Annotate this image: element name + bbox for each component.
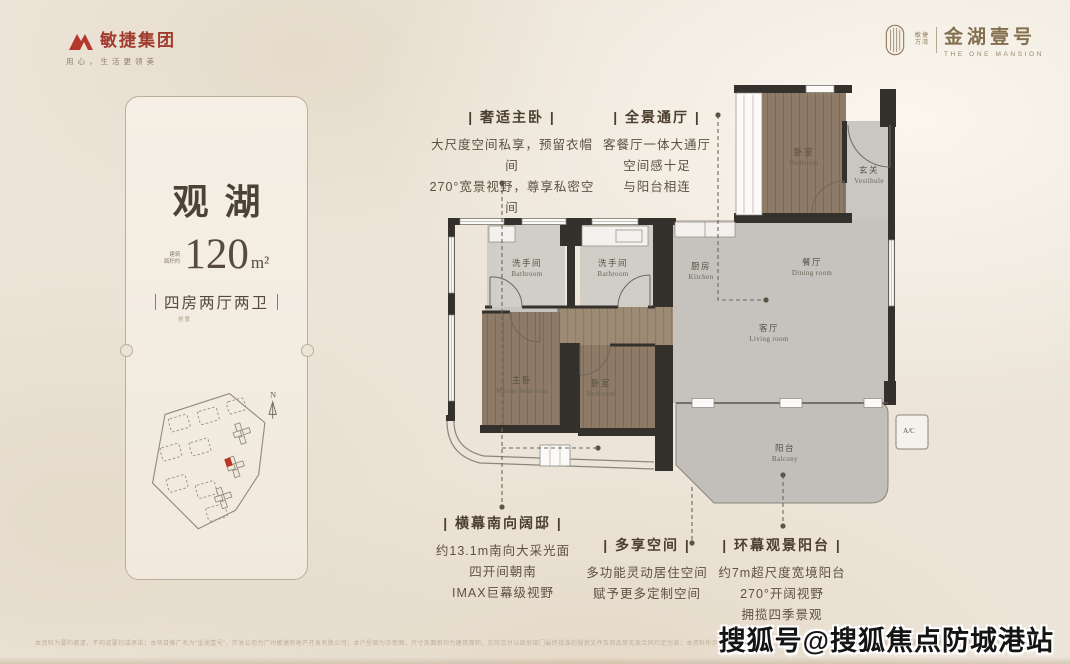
unit-layout: 四房两厅两卫 — [126, 291, 307, 313]
callout-line: 270°开阔视野 — [696, 584, 868, 605]
poster-page: 敏捷集团 用心，生活更领美 敏捷 万湾 金湖壹号 THE ONE MANSION… — [0, 0, 1070, 664]
room-cn: 玄关 — [854, 164, 884, 176]
area-label-line2: 面积约 — [164, 259, 181, 266]
room-en: Balcony — [772, 455, 798, 463]
site-boundary — [153, 394, 265, 529]
room-label-bedroom2: 卧室 Bedroom — [587, 377, 616, 398]
area-unit: m² — [251, 253, 269, 273]
room-label-bathroom1: 洗手间 Bathroom — [511, 257, 542, 278]
callout-title: | 横幕南向阔邸 | — [417, 513, 589, 533]
compass-n-label: N — [270, 391, 276, 400]
unit-info-card: 观湖 建筑 面积约 120 m² 四房两厅两卫 创意 — [125, 96, 308, 580]
lantern-emblem-icon — [882, 22, 908, 58]
room-label-vestibule: 玄关 Vestibule — [854, 164, 884, 185]
callout-line: 约7m超尺度宽境阳台 — [696, 563, 868, 584]
ac-text: A/C — [903, 427, 915, 435]
layout-text: 四房两厅两卫 — [164, 291, 269, 313]
card-notch-left — [120, 344, 133, 357]
room-label-dining: 餐厅 Dining room — [792, 256, 832, 277]
room-label-bedroom-top: 卧室 Bedroom — [790, 146, 819, 167]
callout-line: 客餐厅一体大通厅 — [577, 135, 737, 156]
brand-left-name: 敏捷集团 — [100, 26, 176, 51]
room-en: Bathroom — [511, 270, 542, 278]
watermark: 搜狐号@搜狐焦点防城港站 — [719, 619, 1054, 658]
site-pinwheel-buildings — [212, 421, 253, 510]
room-label-balcony: 阳台 Balcony — [772, 442, 798, 463]
room-label-ac: A/C — [903, 427, 915, 435]
unit-title-text: 观湖 — [172, 182, 276, 222]
room-label-kitchen: 厨房 Kitchen — [689, 260, 714, 281]
area-value: 120 — [184, 235, 249, 275]
brand-swoosh-icon — [66, 32, 96, 51]
room-cn: 客厅 — [749, 322, 789, 334]
room-cn: 卧室 — [790, 146, 819, 158]
compass-icon: N — [269, 391, 276, 419]
card-notch-right — [301, 344, 314, 357]
callout-line: 与阳台相连 — [577, 177, 737, 198]
room-en: Dining room — [792, 269, 832, 277]
callout-panoramic-hall: | 全景通厅 | 客餐厅一体大通厅 空间感十足 与阳台相连 — [577, 107, 737, 198]
callout-view-balcony: | 环幕观景阳台 | 约7m超尺度宽境阳台 270°开阔视野 拥揽四季景观 — [696, 535, 868, 626]
layout-bar-left — [155, 294, 156, 310]
room-cn: 卧室 — [587, 377, 616, 389]
room-en: Bedroom — [587, 390, 616, 398]
room-cn: 餐厅 — [792, 256, 832, 268]
project-name: 金湖壹号 — [944, 22, 1044, 49]
room-en: Kitchen — [689, 273, 714, 281]
brand-divider — [936, 27, 937, 53]
callout-title: | 全景通厅 | — [577, 107, 737, 127]
room-cn: 阳台 — [772, 442, 798, 454]
callout-line: 大尺度空间私享，预留衣帽间 — [427, 135, 597, 177]
developer-line1: 敏捷 — [915, 33, 929, 40]
callout-master-bedroom: | 奢适主卧 | 大尺度空间私享，预留衣帽间 270°宽景视野，尊享私密空间 — [427, 107, 597, 219]
brand-right: 敏捷 万湾 金湖壹号 THE ONE MANSION — [882, 22, 1044, 58]
room-cn: 厨房 — [689, 260, 714, 272]
unit-title: 观湖 — [126, 173, 307, 225]
layout-note: 创意 — [178, 315, 191, 323]
callout-line: 270°宽景视野，尊享私密空间 — [427, 177, 597, 219]
brand-left-tagline: 用心，生活更领美 — [66, 56, 176, 67]
room-en: Living room — [749, 335, 789, 343]
area-label-line1: 建筑 — [164, 252, 181, 259]
room-cn: 主卧 — [496, 374, 548, 386]
room-label-bathroom2: 洗手间 Bathroom — [597, 257, 628, 278]
room-en: Bathroom — [597, 270, 628, 278]
callout-line: 空间感十足 — [577, 156, 737, 177]
room-cn: 洗手间 — [511, 257, 542, 269]
room-en: Master bedroom — [496, 387, 548, 395]
unit-area: 建筑 面积约 120 m² — [126, 235, 307, 275]
brand-right-developer: 敏捷 万湾 — [915, 33, 929, 47]
area-label: 建筑 面积约 — [164, 252, 181, 266]
project-name-en: THE ONE MANSION — [944, 51, 1044, 58]
site-plan: N — [138, 383, 294, 555]
developer-line2: 万湾 — [915, 40, 929, 47]
room-cn: 洗手间 — [597, 257, 628, 269]
layout-bar-right — [277, 294, 278, 310]
room-en: Vestibule — [854, 177, 884, 185]
room-label-living: 客厅 Living room — [749, 322, 789, 343]
callout-title: | 环幕观景阳台 | — [696, 535, 868, 555]
room-en: Bedroom — [790, 159, 819, 167]
callout-title: | 奢适主卧 | — [427, 107, 597, 127]
room-label-master: 主卧 Master bedroom — [496, 374, 548, 395]
brand-left: 敏捷集团 用心，生活更领美 — [66, 26, 176, 67]
